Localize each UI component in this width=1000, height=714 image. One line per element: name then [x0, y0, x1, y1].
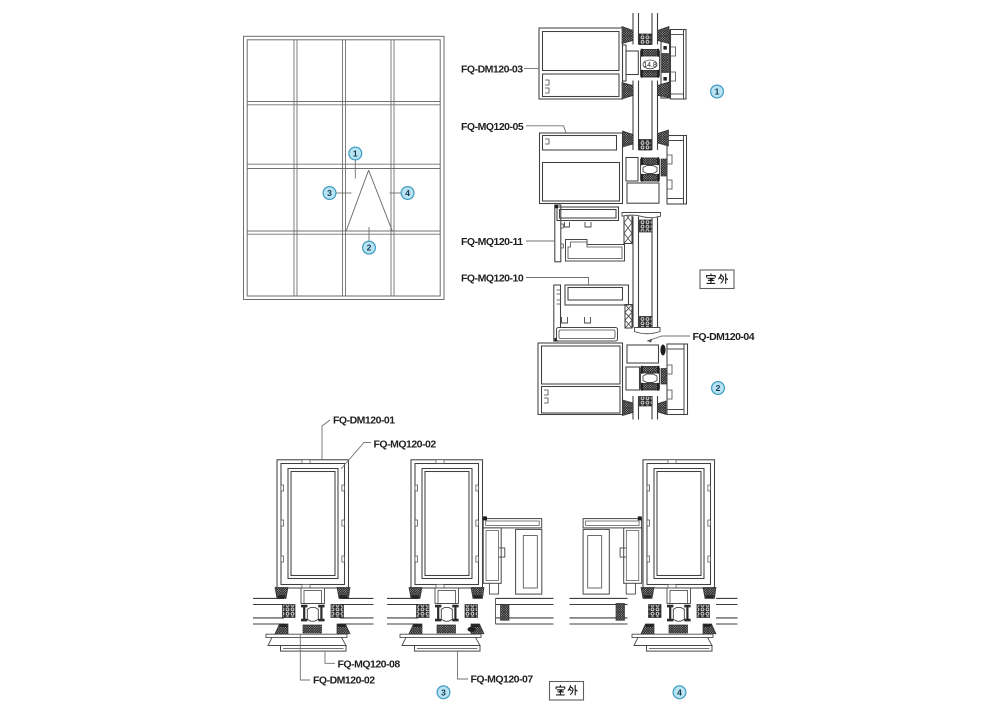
svg-text:14.8: 14.8 [643, 62, 657, 69]
svg-text:FQ-DM120-01: FQ-DM120-01 [333, 415, 395, 427]
svg-text:FQ-MQ120-07: FQ-MQ120-07 [471, 674, 534, 686]
svg-text:1: 1 [715, 87, 720, 97]
svg-text:2: 2 [716, 383, 721, 393]
svg-text:3: 3 [327, 188, 332, 198]
svg-text:4: 4 [405, 188, 410, 198]
svg-text:1: 1 [353, 149, 358, 159]
svg-text:FQ-MQ120-02: FQ-MQ120-02 [374, 438, 437, 450]
svg-text:3: 3 [441, 687, 446, 697]
svg-text:4: 4 [677, 687, 682, 697]
svg-text:FQ-DM120-04: FQ-DM120-04 [693, 331, 755, 343]
svg-text:FQ-MQ120-11: FQ-MQ120-11 [461, 236, 523, 248]
svg-text:FQ-MQ120-05: FQ-MQ120-05 [461, 121, 524, 133]
svg-text:FQ-MQ120-08: FQ-MQ120-08 [338, 658, 401, 670]
svg-text:FQ-DM120-03: FQ-DM120-03 [461, 63, 523, 75]
svg-text:2: 2 [367, 243, 372, 253]
svg-text:FQ-MQ120-10: FQ-MQ120-10 [461, 273, 524, 285]
svg-text:FQ-DM120-02: FQ-DM120-02 [313, 675, 375, 687]
